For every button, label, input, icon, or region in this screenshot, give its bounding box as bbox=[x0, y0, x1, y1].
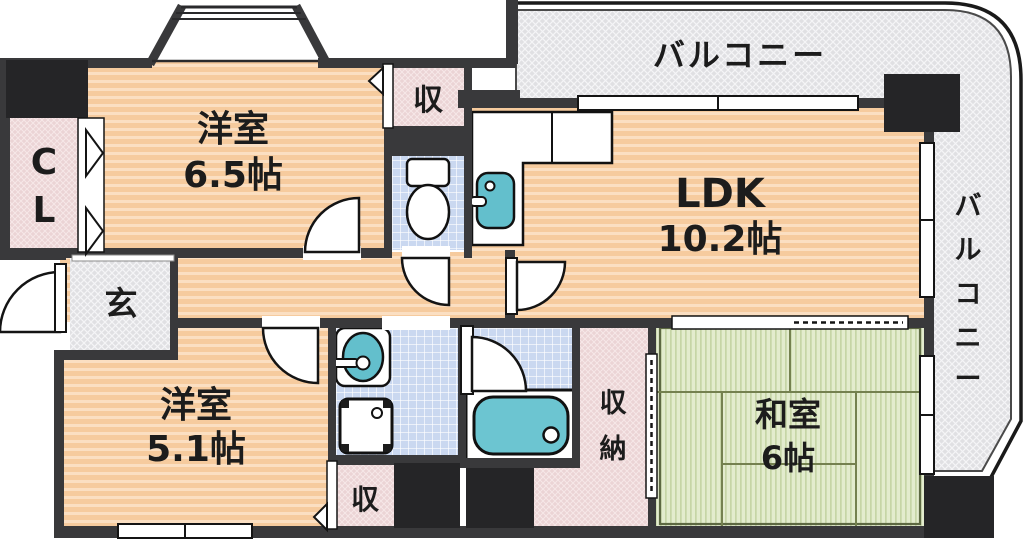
closet-cl-char-c: C bbox=[31, 142, 57, 183]
wall-block-b bbox=[466, 468, 534, 528]
balcony-right-char-1: バ bbox=[955, 191, 982, 222]
western-5-1-label: 洋室 bbox=[160, 385, 232, 426]
ldk-size: 10.2帖 bbox=[658, 219, 783, 260]
kitchen-faucet bbox=[470, 197, 486, 206]
balcony-right-char-2: ル bbox=[955, 235, 982, 266]
bay-window bbox=[150, 6, 327, 64]
floor-plan-page: 洋室 6.5帖 LDK 10.2帖 洋室 5.1帖 和室 6帖 玄 C L 収 … bbox=[0, 0, 1024, 540]
washbasin bbox=[330, 328, 390, 386]
pillar-top-left bbox=[6, 60, 88, 118]
western-6-5-size: 6.5帖 bbox=[183, 155, 283, 196]
entrance-door-leaf bbox=[55, 264, 66, 332]
bathtub bbox=[466, 390, 576, 462]
entrance-label: 玄 bbox=[105, 284, 138, 323]
washing-machine bbox=[340, 399, 392, 453]
closet-cl-char-l: L bbox=[33, 190, 56, 231]
balcony-right-char-3: コ bbox=[955, 279, 982, 310]
pillar-bottom-right bbox=[924, 476, 994, 538]
balcony-right-char-5: ー bbox=[955, 364, 982, 395]
japanese-room-size: 6帖 bbox=[761, 439, 815, 477]
storage-top-door bbox=[383, 64, 393, 128]
floor-plan-drawing: 洋室 6.5帖 LDK 10.2帖 洋室 5.1帖 和室 6帖 玄 C L 収 … bbox=[0, 0, 1024, 540]
toilet bbox=[407, 159, 449, 239]
ldk-door-leaf bbox=[506, 258, 517, 314]
storage-bottom-door bbox=[327, 461, 337, 529]
balcony-right-char-4: ニ bbox=[955, 323, 982, 354]
storage-closet-char-1: 収 bbox=[600, 388, 628, 419]
entrance-step bbox=[72, 255, 174, 261]
storage-closet-char-2: 納 bbox=[600, 433, 627, 465]
washroom-opening bbox=[382, 316, 450, 330]
kitchen-faucet-hole bbox=[486, 182, 495, 191]
ldk-label: LDK bbox=[675, 171, 767, 217]
storage-bottom-label: 収 bbox=[351, 483, 380, 516]
closet-cl-floor bbox=[8, 116, 78, 252]
balcony-top-label: バルコニー bbox=[653, 36, 827, 74]
western-5-1-size: 5.1帖 bbox=[146, 429, 246, 470]
japanese-sliding-door bbox=[672, 316, 908, 329]
japanese-room-label: 和室 bbox=[755, 395, 821, 434]
western-6-5-label: 洋室 bbox=[197, 109, 269, 150]
entrance-door-swing bbox=[0, 272, 60, 332]
wall-block-a bbox=[394, 463, 460, 528]
pillar-top-right bbox=[884, 74, 960, 132]
storage-top-label: 収 bbox=[413, 83, 444, 118]
